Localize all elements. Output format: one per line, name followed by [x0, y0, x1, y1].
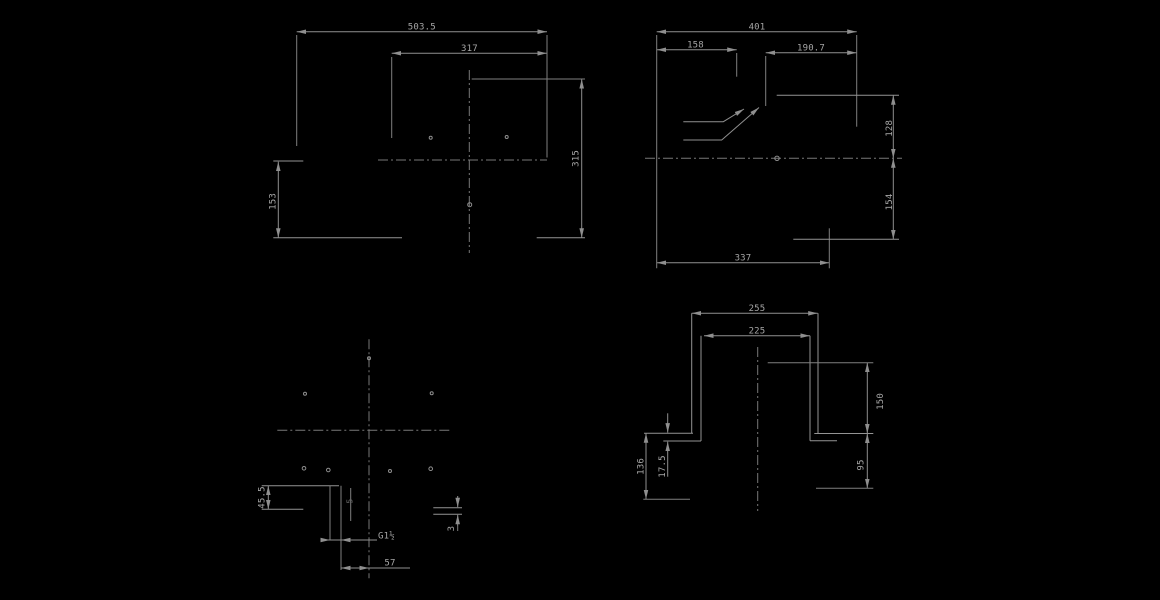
hole-mark: [389, 470, 392, 473]
dim-label-inner-width: 317: [461, 44, 478, 54]
hole-mark: [430, 392, 433, 395]
technical-drawing-canvas: 503.5 317 315 153 401 158 190.7 128 154: [0, 0, 1160, 600]
cad-drawing-stage: 503.5 317 315 153 401 158 190.7 128 154: [0, 0, 1160, 600]
hole-mark: [327, 468, 331, 472]
hole-mark: [429, 136, 432, 139]
hole-mark: [429, 467, 433, 471]
dim-label-drain-thread: G1½: [378, 531, 395, 542]
dim-label-edge-gap: 3: [447, 526, 457, 532]
dim-label-overall-depth: 401: [749, 23, 766, 33]
dim-label-height-lower: 153: [269, 193, 279, 210]
plan-view: 45.5 G1½ 57 3 5: [258, 339, 463, 578]
dim-label-rear-depth: 190.7: [797, 44, 825, 54]
flow-arrow: [683, 109, 744, 122]
hole-mark: [505, 136, 508, 139]
dim-label-inner-width: 225: [749, 327, 766, 337]
hole-mark: [302, 467, 306, 471]
dim-label-outer-width: 255: [749, 304, 766, 314]
dim-label-height-right-lower: 95: [857, 459, 867, 470]
dim-label-height-right-upper: 150: [876, 393, 886, 410]
dim-label-height-total: 315: [571, 150, 581, 167]
dim-label-flange-gap: 17.5: [658, 455, 668, 477]
dim-label-detail-mark: 5: [346, 498, 355, 503]
front-view: 503.5 317 315 153: [269, 23, 586, 254]
dim-label-height-upper: 128: [885, 120, 895, 137]
dim-label-drain-offset: 57: [384, 559, 395, 569]
dim-label-height-left: 136: [637, 458, 647, 475]
dim-label-overall-width: 503.5: [408, 23, 436, 33]
flow-arrow: [683, 108, 759, 141]
section-view: 255 225 150 95 136 17.5: [637, 304, 887, 511]
side-view: 401 158 190.7 128 154 337: [645, 23, 902, 269]
dim-label-height-lower: 154: [885, 194, 895, 211]
dim-label-base-depth: 337: [735, 254, 752, 264]
dim-label-corner-offset: 45.5: [258, 486, 268, 508]
dim-label-front-depth: 158: [687, 41, 704, 51]
hole-mark: [304, 392, 307, 395]
